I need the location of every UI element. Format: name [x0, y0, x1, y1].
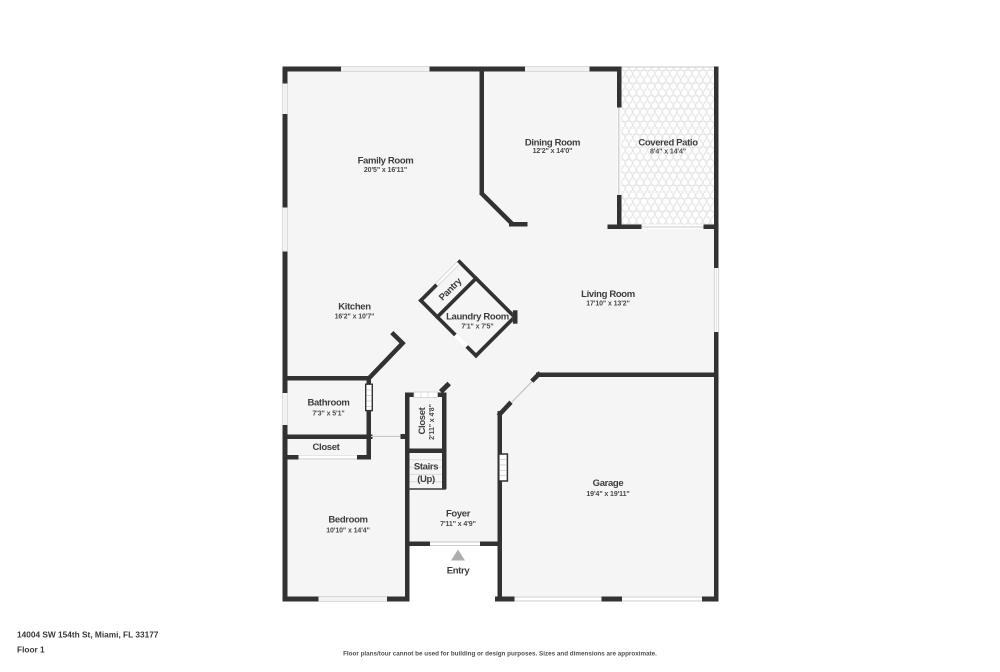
svg-text:Garage: Garage: [593, 478, 624, 489]
svg-text:Floor 1: Floor 1: [17, 645, 45, 655]
svg-text:Laundry Room: Laundry Room: [446, 312, 509, 323]
svg-text:Closet: Closet: [313, 442, 341, 453]
svg-text:8'4" x 14'4": 8'4" x 14'4": [650, 149, 686, 156]
svg-text:7'11" x 4'9": 7'11" x 4'9": [440, 521, 476, 528]
svg-text:16'2" x 10'7": 16'2" x 10'7": [335, 314, 375, 321]
svg-text:Bathroom: Bathroom: [307, 398, 349, 409]
svg-text:7'3" x 5'1": 7'3" x 5'1": [312, 411, 344, 418]
svg-text:2'11" x 4'8": 2'11" x 4'8": [429, 404, 436, 440]
svg-text:Closet: Closet: [417, 406, 428, 434]
svg-text:19'4" x 19'11": 19'4" x 19'11": [586, 491, 629, 498]
svg-text:Entry: Entry: [447, 565, 471, 576]
svg-text:Foyer: Foyer: [446, 508, 471, 519]
svg-text:10'10" x 14'4": 10'10" x 14'4": [326, 528, 370, 535]
svg-text:Kitchen: Kitchen: [338, 301, 371, 312]
svg-text:14004 SW 154th St, Miami, FL 3: 14004 SW 154th St, Miami, FL 33177: [17, 630, 159, 640]
svg-text:(Up): (Up): [417, 474, 435, 485]
svg-text:Covered Patio: Covered Patio: [638, 138, 698, 149]
svg-text:Family Room: Family Room: [358, 155, 414, 166]
svg-text:Dining Room: Dining Room: [525, 137, 580, 148]
svg-text:12'2" x 14'0": 12'2" x 14'0": [533, 148, 573, 155]
svg-text:17'10" x 13'2": 17'10" x 13'2": [586, 301, 630, 308]
svg-text:Stairs: Stairs: [414, 461, 438, 472]
svg-text:20'5" x 16'11": 20'5" x 16'11": [364, 167, 407, 174]
svg-text:7'1" x 7'5": 7'1" x 7'5": [461, 324, 493, 331]
svg-text:Bedroom: Bedroom: [328, 514, 367, 525]
svg-text:Floor plans/tour cannot be use: Floor plans/tour cannot be used for buil…: [343, 651, 657, 658]
svg-text:Living Room: Living Room: [581, 289, 635, 300]
